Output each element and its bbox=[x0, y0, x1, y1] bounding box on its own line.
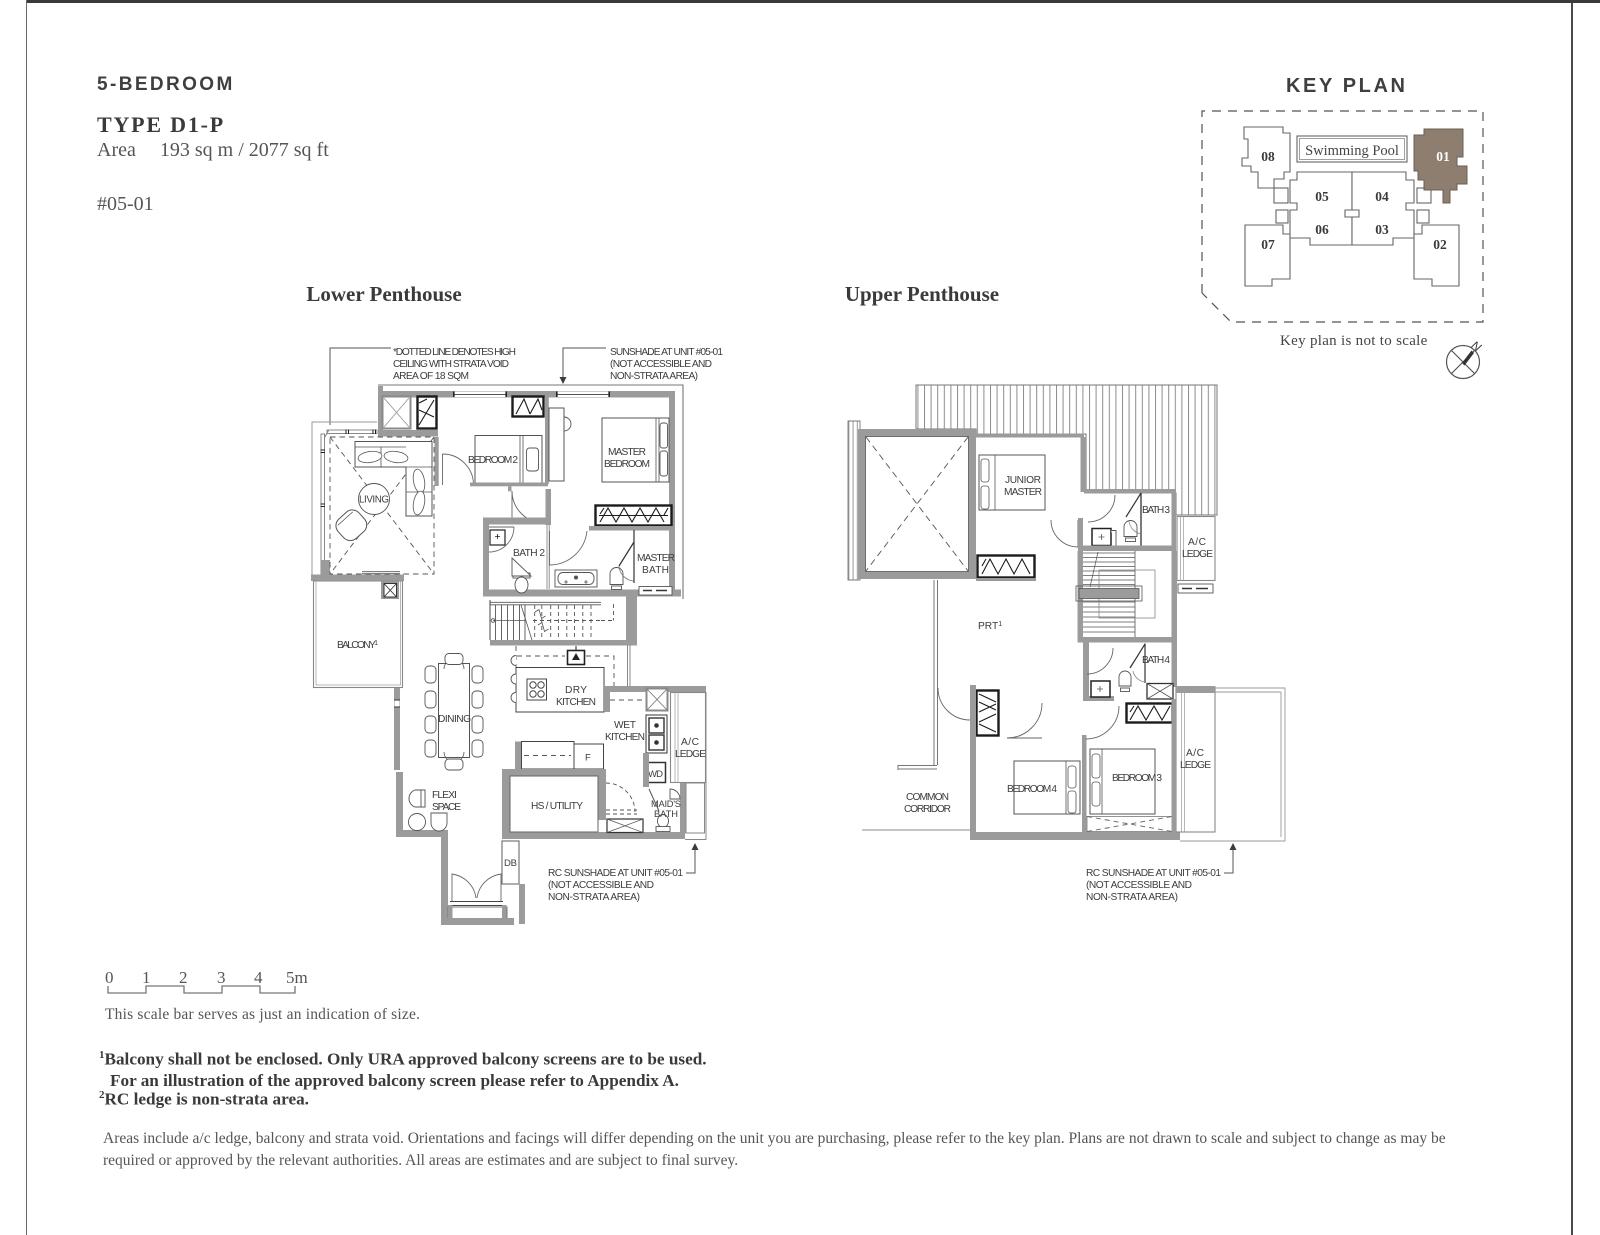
svg-text:NON-STRATA AREA): NON-STRATA AREA) bbox=[1086, 892, 1178, 903]
svg-text:*DOTTED LINE DENOTES HIGH: *DOTTED LINE DENOTES HIGH bbox=[393, 347, 516, 358]
svg-text:05: 05 bbox=[1315, 189, 1329, 204]
svg-text:LEDGE: LEDGE bbox=[1182, 549, 1213, 560]
svg-text:FLEXI: FLEXI bbox=[432, 790, 457, 801]
svg-text:02: 02 bbox=[1433, 237, 1447, 252]
svg-text:BATH: BATH bbox=[642, 565, 669, 576]
svg-text:CEILING WITH STRATA VOID: CEILING WITH STRATA VOID bbox=[393, 359, 509, 370]
svg-text:MASTER: MASTER bbox=[608, 447, 646, 458]
svg-text:RC SUNSHADE AT UNIT #05-01: RC SUNSHADE AT UNIT #05-01 bbox=[548, 868, 683, 879]
svg-text:DINING: DINING bbox=[438, 714, 471, 725]
svg-text:BALCONY1: BALCONY1 bbox=[337, 640, 378, 651]
svg-text:BATH 4: BATH 4 bbox=[1142, 655, 1170, 666]
svg-text:WD: WD bbox=[648, 769, 663, 780]
svg-text:BATH 3: BATH 3 bbox=[1142, 505, 1170, 516]
svg-text:PRT1: PRT1 bbox=[978, 621, 1002, 632]
svg-text:DB: DB bbox=[504, 858, 517, 869]
svg-text:Swimming Pool: Swimming Pool bbox=[1305, 143, 1399, 159]
svg-text:BATH 2: BATH 2 bbox=[513, 548, 545, 559]
svg-text:AREA OF 18 SQM: AREA OF 18 SQM bbox=[393, 371, 469, 382]
svg-text:MAID'S: MAID'S bbox=[651, 799, 681, 809]
svg-text:A/C: A/C bbox=[1188, 537, 1206, 548]
svg-text:(NOT ACCESSIBLE AND: (NOT ACCESSIBLE AND bbox=[548, 880, 654, 891]
svg-text:4: 4 bbox=[254, 968, 263, 987]
svg-text:04: 04 bbox=[1375, 189, 1389, 204]
svg-text:(NOT ACCESSIBLE AND: (NOT ACCESSIBLE AND bbox=[610, 359, 712, 370]
svg-text:BEDROOM 4: BEDROOM 4 bbox=[1007, 784, 1057, 795]
svg-text:1: 1 bbox=[142, 968, 151, 987]
svg-text:LIVING: LIVING bbox=[359, 495, 389, 506]
svg-text:F: F bbox=[585, 753, 591, 764]
svg-text:(NOT ACCESSIBLE AND: (NOT ACCESSIBLE AND bbox=[1086, 880, 1192, 891]
svg-text:WET: WET bbox=[614, 720, 636, 731]
svg-text:KITCHEN: KITCHEN bbox=[605, 732, 645, 743]
svg-text:03: 03 bbox=[1375, 222, 1389, 237]
svg-text:2: 2 bbox=[179, 968, 188, 987]
svg-text:MASTER: MASTER bbox=[637, 553, 675, 564]
svg-text:COMMON: COMMON bbox=[906, 792, 949, 803]
svg-text:BEDROOM 2: BEDROOM 2 bbox=[468, 455, 518, 466]
svg-text:BATH: BATH bbox=[654, 809, 678, 819]
svg-text:BEDROOM: BEDROOM bbox=[604, 459, 650, 470]
svg-text:JUNIOR: JUNIOR bbox=[1005, 475, 1041, 486]
svg-text:BEDROOM 3: BEDROOM 3 bbox=[1112, 773, 1162, 784]
svg-text:CORRIDOR: CORRIDOR bbox=[904, 804, 951, 815]
svg-text:KITCHEN: KITCHEN bbox=[556, 697, 596, 708]
svg-text:SUNSHADE AT UNIT #05-01: SUNSHADE AT UNIT #05-01 bbox=[610, 347, 723, 358]
svg-text:LEDGE: LEDGE bbox=[675, 749, 706, 760]
svg-text:SPACE: SPACE bbox=[432, 802, 461, 813]
svg-text:A/C: A/C bbox=[681, 737, 699, 748]
svg-text:01: 01 bbox=[1436, 149, 1450, 164]
svg-text:0: 0 bbox=[105, 968, 114, 987]
svg-text:3: 3 bbox=[217, 968, 226, 987]
svg-text:HS / UTILITY: HS / UTILITY bbox=[531, 801, 583, 812]
svg-text:NON-STRATA AREA): NON-STRATA AREA) bbox=[548, 892, 640, 903]
svg-text:5m: 5m bbox=[286, 968, 308, 987]
svg-text:MASTER: MASTER bbox=[1004, 487, 1042, 498]
svg-text:DRY: DRY bbox=[565, 685, 587, 696]
svg-text:NON-STRATA AREA): NON-STRATA AREA) bbox=[610, 371, 698, 382]
svg-text:07: 07 bbox=[1261, 237, 1275, 252]
svg-text:06: 06 bbox=[1315, 222, 1329, 237]
svg-text:LEDGE: LEDGE bbox=[1180, 760, 1211, 771]
svg-text:A/C: A/C bbox=[1186, 748, 1204, 759]
svg-text:08: 08 bbox=[1261, 149, 1275, 164]
svg-text:RC SUNSHADE AT UNIT #05-01: RC SUNSHADE AT UNIT #05-01 bbox=[1086, 868, 1221, 879]
